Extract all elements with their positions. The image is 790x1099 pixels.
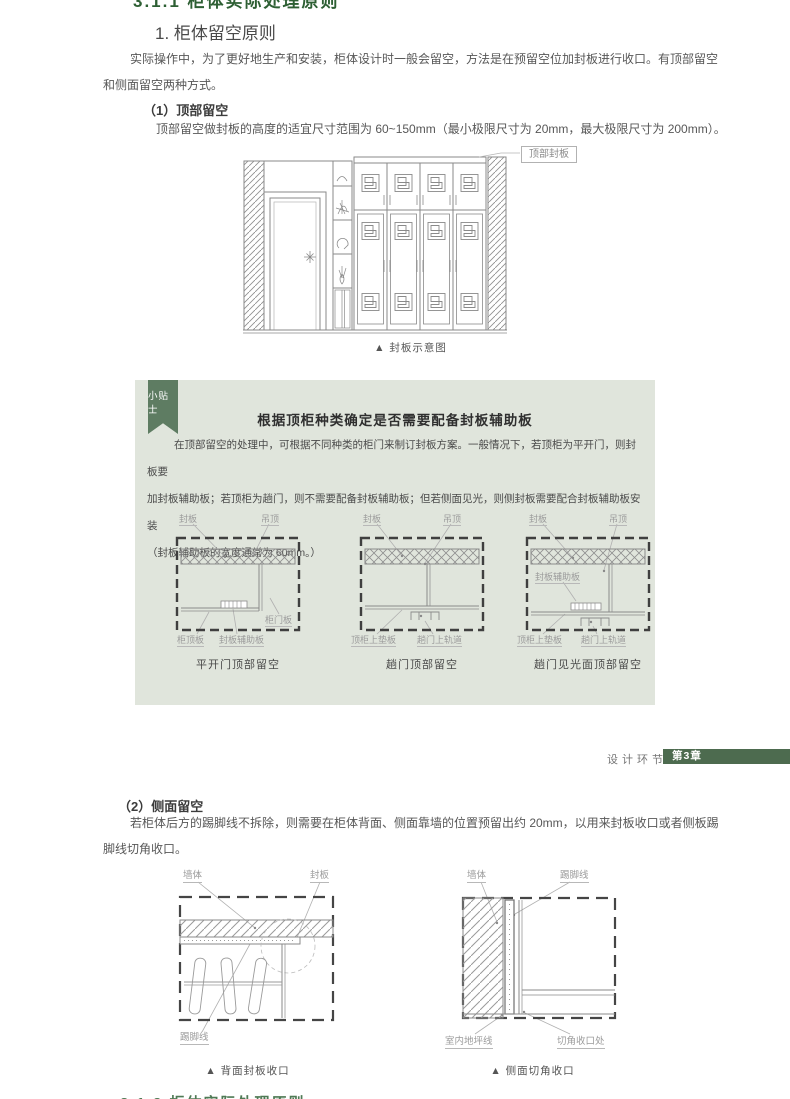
sliding-door-exposed-side-diagram: 封板 吊顶 封板辅助板 顶柜上垫板 趟门上轨道 趟门见光面顶部留空 bbox=[513, 508, 671, 678]
back-seal-caption: ▲ 背面封板收口 bbox=[150, 1063, 345, 1078]
top-heading-clipped: 3.1.1 柜体实际处理原则 bbox=[133, 0, 340, 12]
label-ceiling: 吊顶 bbox=[261, 514, 279, 526]
label-top-pad-board: 顶柜上垫板 bbox=[517, 635, 562, 647]
label-skirting: 踢脚线 bbox=[560, 870, 589, 883]
subsection-2-line: 若柜体后方的踢脚线不拆除，则需要在柜体背面、侧面靠墙的位置预留出约 20mm，以… bbox=[103, 810, 743, 836]
tip-title: 根据顶柜种类确定是否需要配备封板辅助板 bbox=[135, 409, 655, 429]
intro-line: 实际操作中，为了更好地生产和安装，柜体设计时一般会留空，方法是在预留空位加封板进… bbox=[103, 46, 733, 72]
back-seal-closure-figure: 墙体 封板 踢脚线 ▲ 背面封板收口 bbox=[150, 866, 345, 1081]
label-cabinet-top: 柜顶板 bbox=[177, 635, 204, 647]
tip-body-line: 在顶部留空的处理中，可根据不同种类的柜门来制订封板方案。一般情况下，若顶柜为平开… bbox=[147, 432, 644, 486]
cabinet-elevation-drawing bbox=[243, 148, 578, 338]
tip-diagram-2-caption: 趟门顶部留空 bbox=[347, 656, 497, 672]
subsection-2-text: 若柜体后方的踢脚线不拆除，则需要在柜体背面、侧面靠墙的位置预留出约 20mm，以… bbox=[103, 810, 743, 862]
label-sliding-track: 趟门上轨道 bbox=[581, 635, 626, 647]
sliding-door-detail-drawing bbox=[347, 508, 497, 650]
hinged-door-top-clearance-diagram: 封板 吊顶 柜门板 柜顶板 封板辅助板 平开门顶部留空 bbox=[163, 508, 321, 678]
label-ceiling: 吊顶 bbox=[443, 514, 461, 526]
intro-paragraph: 实际操作中，为了更好地生产和安装，柜体设计时一般会留空，方法是在预留空位加封板进… bbox=[103, 46, 733, 98]
label-seal-board: 封板 bbox=[529, 514, 547, 526]
tip-box: 小贴士 根据顶柜种类确定是否需要配备封板辅助板 在顶部留空的处理中，可根据不同种… bbox=[135, 380, 655, 705]
subsection-2-line: 脚线切角收口。 bbox=[103, 836, 743, 862]
label-wall: 墙体 bbox=[467, 870, 486, 883]
tip-diagram-3-caption: 趟门见光面顶部留空 bbox=[513, 656, 663, 672]
label-corner-cut-spot: 切角收口处 bbox=[557, 1036, 605, 1049]
label-skirting: 踢脚线 bbox=[180, 1032, 209, 1045]
label-seal-board: 封板 bbox=[363, 514, 381, 526]
chapter-badge: 第3章 bbox=[663, 749, 790, 764]
seal-figure-caption: ▲ 封板示意图 bbox=[243, 340, 578, 355]
label-interior-floor-line: 室内地坪线 bbox=[445, 1036, 493, 1049]
tip-diagram-1-caption: 平开门顶部留空 bbox=[163, 656, 313, 672]
top-seal-board-label: 顶部封板 bbox=[521, 146, 577, 163]
label-aux-board: 封板辅助板 bbox=[219, 635, 264, 647]
label-ceiling: 吊顶 bbox=[609, 514, 627, 526]
side-cut-plan-drawing bbox=[435, 866, 630, 1058]
hinged-door-detail-drawing bbox=[163, 508, 313, 650]
sliding-door-top-clearance-diagram: 封板 吊顶 顶柜上垫板 趟门上轨道 趟门顶部留空 bbox=[347, 508, 505, 678]
next-section-heading-clipped: 3.1.2 柜体实际处理原则 bbox=[120, 1092, 306, 1099]
section-title: 1. 柜体留空原则 bbox=[155, 19, 276, 44]
seal-board-figure: 顶部封板 ▲ 封板示意图 bbox=[243, 148, 578, 358]
label-seal-board: 封板 bbox=[310, 870, 329, 883]
back-seal-plan-drawing bbox=[150, 866, 345, 1058]
label-cabinet-door: 柜门板 bbox=[265, 615, 292, 627]
label-sliding-track: 趟门上轨道 bbox=[417, 635, 462, 647]
label-aux-board: 封板辅助板 bbox=[535, 572, 580, 584]
intro-line: 和侧面留空两种方式。 bbox=[103, 72, 733, 98]
side-corner-cut-figure: 墙体 踢脚线 室内地坪线 切角收口处 ▲ 侧面切角收口 bbox=[435, 866, 630, 1081]
label-top-pad-board: 顶柜上垫板 bbox=[351, 635, 396, 647]
book-page: 3.1.1 柜体实际处理原则 1. 柜体留空原则 实际操作中，为了更好地生产和安… bbox=[0, 0, 790, 1099]
label-wall: 墙体 bbox=[183, 870, 202, 883]
footer-section-label: 设计环节 bbox=[607, 751, 667, 767]
subsection-1-text: 顶部留空做封板的高度的适宜尺寸范围为 60~150mm（最小极限尺寸为 20mm… bbox=[130, 116, 726, 142]
side-cut-caption: ▲ 侧面切角收口 bbox=[435, 1063, 630, 1078]
label-seal-board: 封板 bbox=[179, 514, 197, 526]
